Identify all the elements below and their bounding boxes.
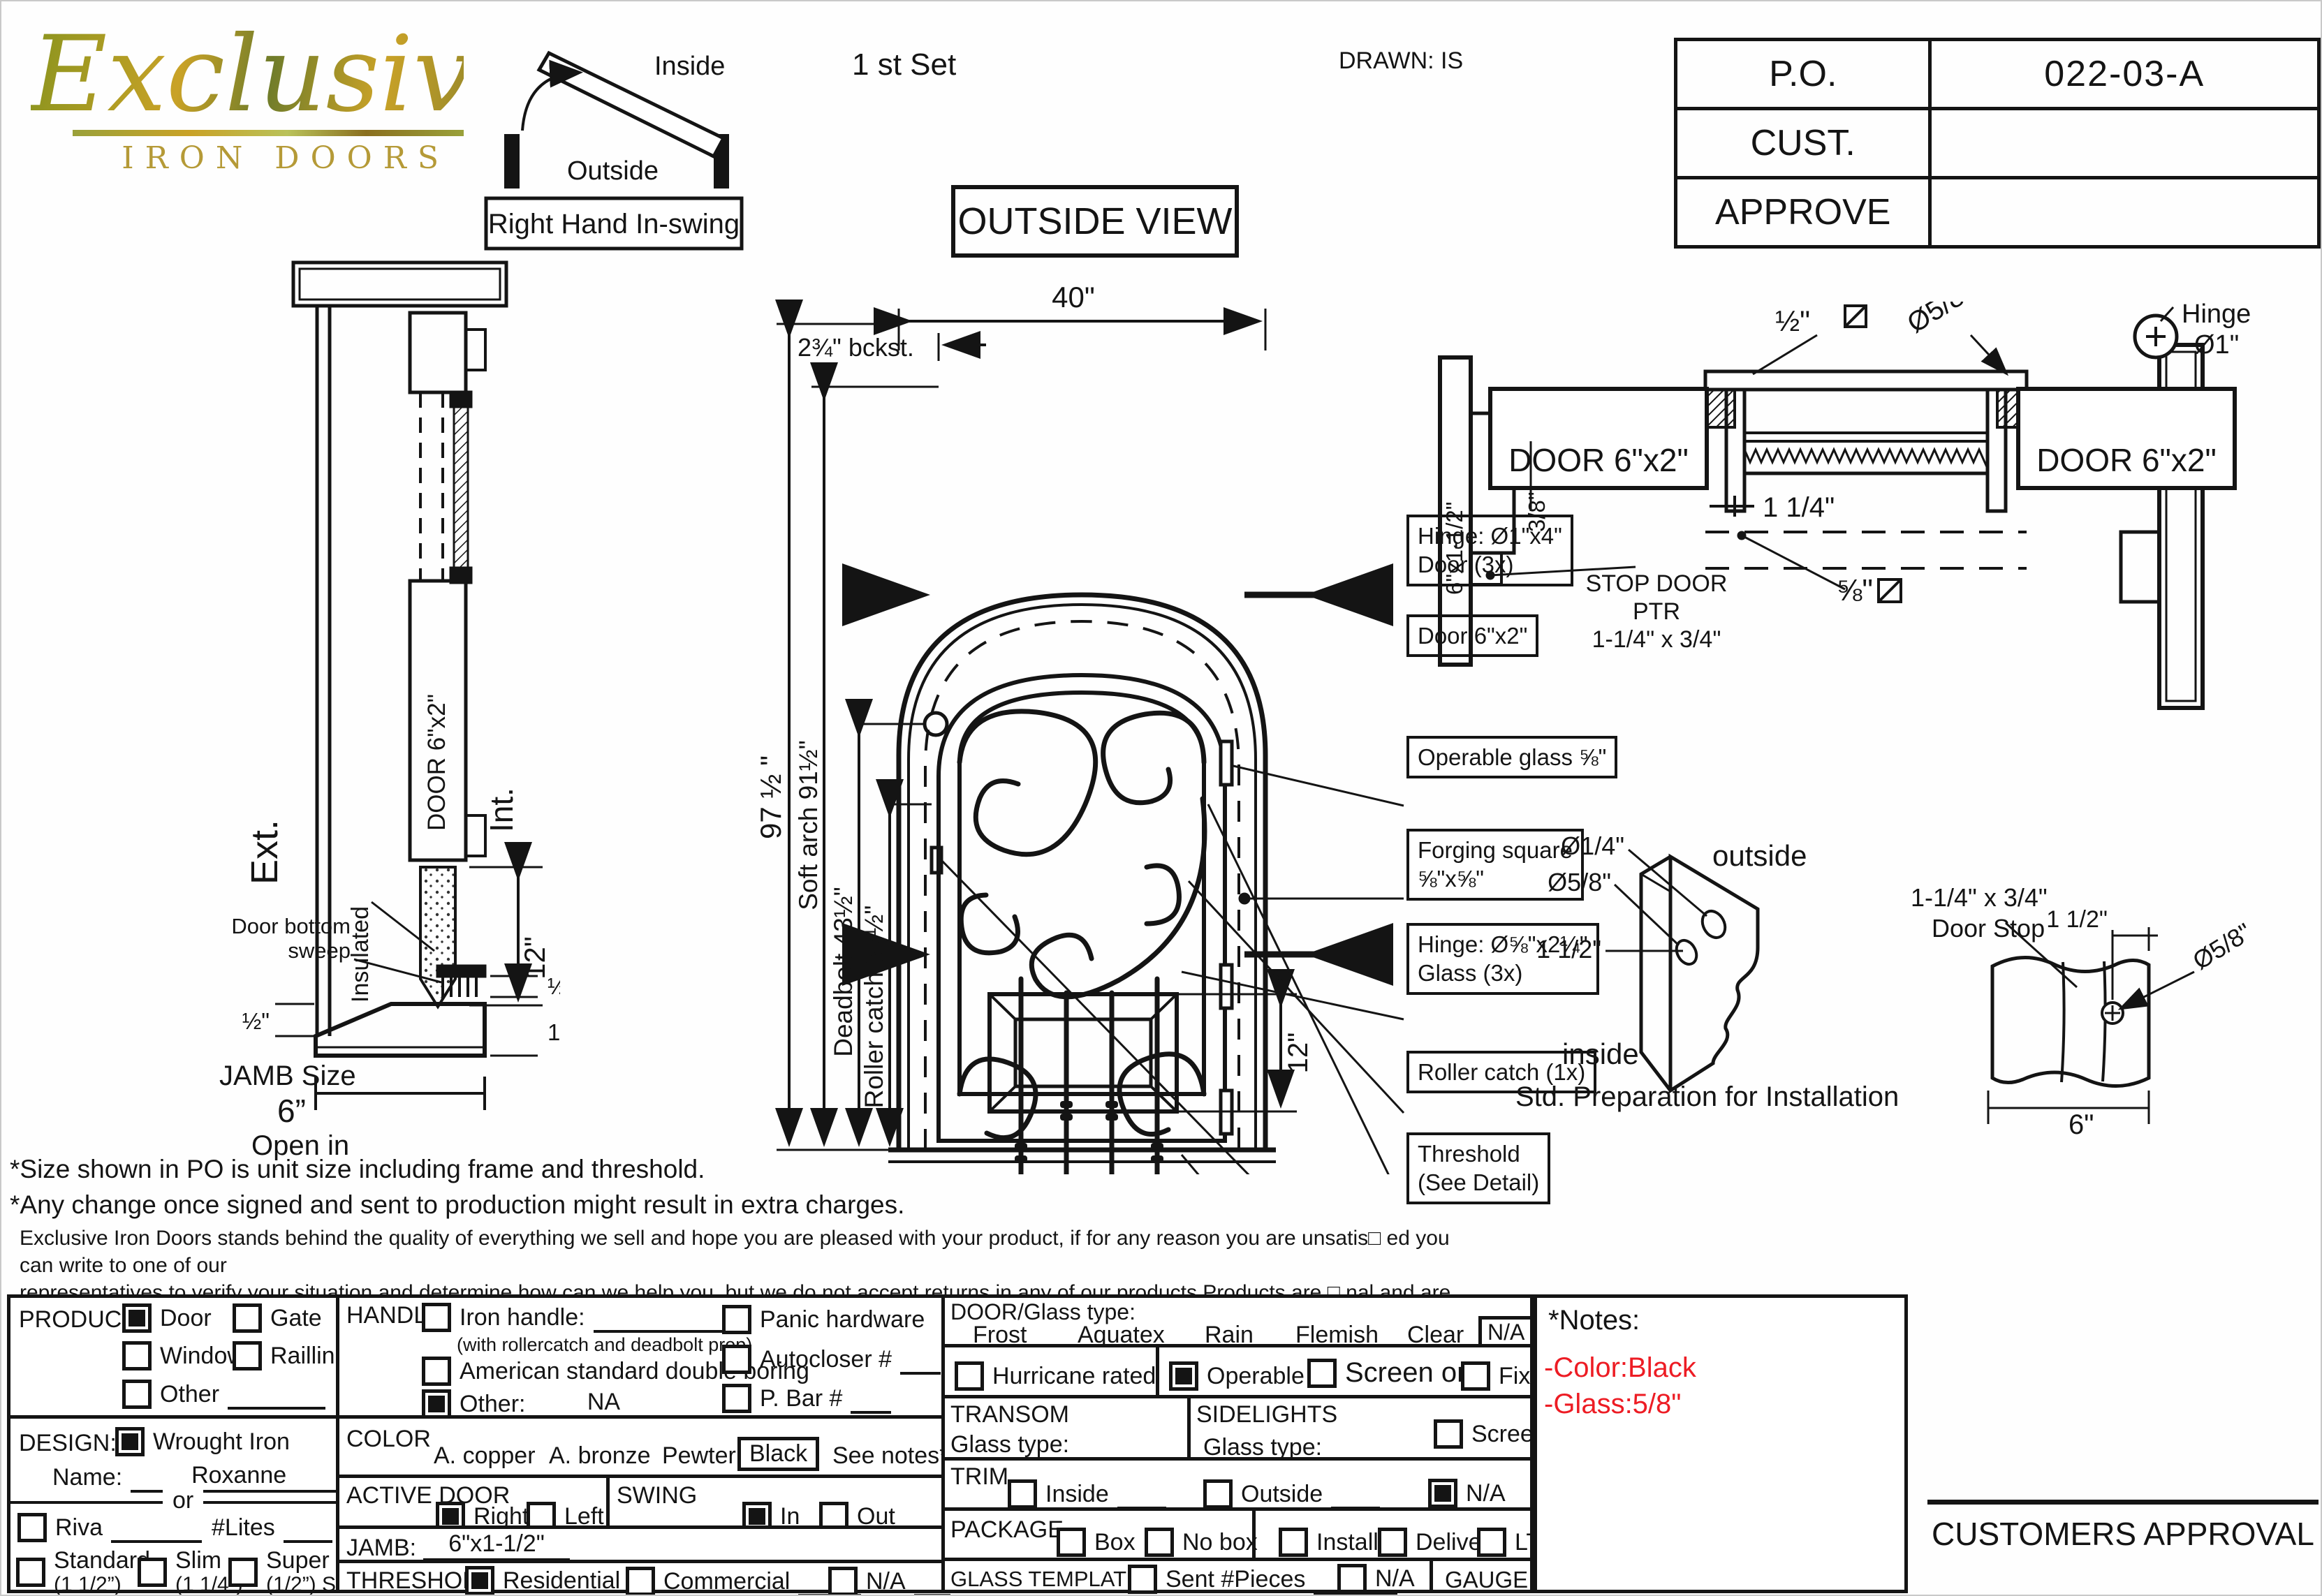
- handle-iron-checkbox[interactable]: [422, 1303, 451, 1332]
- po-label: P.O.: [1676, 40, 1930, 109]
- hurricane-section: Hurricane rated: [941, 1344, 1159, 1398]
- dim-deadbolt: Deadbolt 43½": [829, 887, 858, 1057]
- jamb-label: JAMB:: [346, 1535, 416, 1562]
- callout-threshold: Threshold (See Detail): [1406, 1132, 1550, 1204]
- head-hinge-dia: Ø1": [2194, 330, 2239, 360]
- head-dim-58: ⅝": [1837, 573, 1873, 607]
- head-dim-38: 3/8": [1524, 492, 1550, 532]
- stop-door-2: PTR: [1633, 598, 1680, 625]
- color-section: COLOR A. copper A. bronze Pewter Black S…: [336, 1415, 945, 1478]
- ext-label: Ext.: [244, 820, 286, 885]
- handle-pbar-field[interactable]: [851, 1383, 891, 1414]
- threshold-residential-checkbox[interactable]: [465, 1566, 494, 1595]
- cust-label: CUST.: [1676, 109, 1930, 178]
- prep-dim-112: 1 1/2": [1536, 935, 1601, 963]
- disclaimer-line1: *Size shown in PO is unit size including…: [10, 1155, 705, 1184]
- transom-glass-field[interactable]: [1078, 1429, 1168, 1460]
- handle-autocloser-field[interactable]: [900, 1344, 941, 1375]
- color-bronze[interactable]: A. bronze: [549, 1442, 651, 1470]
- dim-97: 97 ½ ": [756, 755, 787, 839]
- head-section-drawing: DOOR 6"x2" DOOR 6"x2" 6"x1-1/2" 3/8" ½" …: [1426, 302, 2322, 748]
- dim-one-half: 1½": [548, 1019, 560, 1045]
- threshold-na-checkbox[interactable]: [828, 1567, 858, 1596]
- head-hinge: Hinge: [2182, 302, 2251, 329]
- head-dia-58: Ø5/8": [1902, 302, 1978, 339]
- sidelights-screen-checkbox[interactable]: [1434, 1419, 1463, 1449]
- product-gate-checkbox[interactable]: [233, 1303, 262, 1333]
- stop-dia-58: Ø5/8": [2188, 917, 2257, 975]
- trim-inside-field[interactable]: [1117, 1479, 1166, 1509]
- handle-other-checkbox[interactable]: [422, 1389, 451, 1419]
- approval-label: CUSTOMERS APPROVAL: [1927, 1515, 2319, 1553]
- design-label: DESIGN:: [19, 1430, 117, 1457]
- package-section: PACKAGE Box No box Install Delivery LTL: [941, 1507, 1534, 1561]
- notes-color: -Color:Black: [1544, 1352, 1696, 1384]
- threshold-commercial-checkbox[interactable]: [626, 1567, 655, 1596]
- operable-checkbox[interactable]: [1169, 1361, 1198, 1391]
- dim-half-left: ½": [242, 1008, 270, 1034]
- approve-label: APPROVE: [1676, 178, 1930, 247]
- product-window-checkbox[interactable]: [122, 1341, 152, 1370]
- order-sheet: Exclusive IRON DOORS Inside Outside Righ…: [0, 0, 2322, 1596]
- product-railing-checkbox[interactable]: [233, 1341, 262, 1370]
- stop-dim-6: 6": [2069, 1109, 2094, 1139]
- hurricane-checkbox[interactable]: [955, 1361, 984, 1391]
- product-other-field[interactable]: [228, 1379, 325, 1410]
- color-copper[interactable]: A. copper: [434, 1442, 536, 1470]
- or-label: or: [163, 1487, 203, 1514]
- design-superslim-checkbox[interactable]: [228, 1558, 258, 1587]
- package-nobox-checkbox[interactable]: [1145, 1528, 1174, 1557]
- gauge-value: GAUGE: 14: [1445, 1567, 1534, 1596]
- handle-pbar-checkbox[interactable]: [722, 1384, 751, 1413]
- design-standard-checkbox[interactable]: [16, 1558, 45, 1587]
- design-slim-checkbox[interactable]: [138, 1558, 167, 1587]
- stop-door-1: STOP DOOR: [1586, 570, 1728, 597]
- dim-soft-arch: Soft arch 91½": [794, 740, 823, 910]
- dim-40: 40": [1052, 281, 1095, 313]
- order-form: PRODUCT: Door Gate Window Railling Other…: [7, 1294, 1908, 1593]
- dim-roller: Roller catch 37½": [860, 906, 888, 1109]
- handle-iron-field[interactable]: [594, 1302, 726, 1333]
- threshold-section: THRESHOLD Residential Commercial N/A: [336, 1560, 945, 1593]
- wall-stub-left: [504, 134, 520, 189]
- cust-value[interactable]: [1930, 109, 2319, 178]
- prep-outside: outside: [1712, 839, 1807, 872]
- stop-detail-drawing: 1-1/4" x 3/4" Door Stop 1 1/2" Ø5/8" 6": [1901, 860, 2320, 1139]
- head-dim-half: ½": [1775, 304, 1810, 337]
- design-section: DESIGN: Wrought Iron Name:Roxanne or Riv…: [7, 1415, 339, 1593]
- prep-inside: inside: [1562, 1037, 1639, 1070]
- operable-section: Operable Screen or Fixed: [1156, 1344, 1534, 1398]
- template-sent-checkbox[interactable]: [1128, 1565, 1157, 1594]
- dim-panel-12: 12": [1283, 1033, 1314, 1074]
- jamb-door-label: DOOR 6"x2": [423, 694, 450, 831]
- product-door-checkbox[interactable]: [122, 1303, 152, 1333]
- handle-autocloser-checkbox[interactable]: [722, 1345, 751, 1374]
- prep-dia-14: Ø1/4": [1561, 832, 1624, 860]
- head-dim-114: 1 1/4": [1763, 492, 1835, 523]
- logo: Exclusive IRON DOORS: [31, 22, 464, 176]
- po-table: P.O. 022-03-A CUST. APPROVE: [1674, 38, 2321, 249]
- door-elevation-drawing: 40" 2¾" bckst. 97 ½ " Soft arch 91½" Dea…: [756, 267, 1405, 1174]
- approval-signature-line[interactable]: [1927, 1500, 2319, 1505]
- notes-title: *Notes:: [1548, 1305, 1640, 1336]
- package-box-checkbox[interactable]: [1057, 1528, 1086, 1557]
- outside-view-title: OUTSIDE VIEW: [951, 185, 1239, 258]
- int-label: Int.: [483, 788, 520, 832]
- disclaimer-line2: *Any change once signed and sent to prod…: [10, 1190, 904, 1220]
- design-riva-checkbox[interactable]: [17, 1513, 47, 1542]
- handle-panic-checkbox[interactable]: [722, 1305, 751, 1334]
- design-lites-field[interactable]: [284, 1512, 332, 1543]
- swing-diagram: Inside Outside Right Hand In-swing: [483, 36, 756, 260]
- trim-label: TRIM: [950, 1463, 1008, 1491]
- insulated-label: Insulated: [347, 906, 374, 1003]
- drawn-by: DRAWN: IS: [1339, 47, 1463, 75]
- dim-half-right: ½": [548, 973, 560, 999]
- package-install-checkbox[interactable]: [1279, 1528, 1308, 1557]
- head-jamb-plate: 6"x1-1/2": [1441, 502, 1467, 596]
- stop-size: 1-1/4" x 3/4": [1911, 883, 2048, 912]
- logo-subtitle: IRON DOORS: [31, 140, 450, 176]
- outside-label: Outside: [567, 156, 659, 186]
- sidelights-section: SIDELIGHTS Glass type: Screen: [1187, 1395, 1534, 1461]
- glass-template-label: GLASS TEMPLATE: [950, 1567, 1141, 1592]
- swing-section: SWING In Out: [606, 1475, 945, 1529]
- logo-script: Exclusive: [31, 22, 464, 127]
- package-delivery-checkbox[interactable]: [1378, 1528, 1407, 1557]
- glass-template-section: GLASS TEMPLATE Sent #Pieces N/A GAUGE: 1…: [941, 1558, 1534, 1593]
- backset-dim: 2¾" bckst.: [798, 333, 914, 362]
- color-see-notes: See notes*: [832, 1442, 948, 1470]
- set-label: 1 st Set: [852, 47, 956, 82]
- trim-inside-checkbox[interactable]: [1008, 1479, 1037, 1509]
- design-riva-field[interactable]: [111, 1512, 202, 1543]
- color-black-selected[interactable]: Black: [737, 1437, 819, 1471]
- template-na-checkbox[interactable]: [1337, 1564, 1367, 1593]
- inside-label: Inside: [654, 52, 725, 81]
- jamb-section-form: JAMB: 6"x1-1/2": [336, 1525, 945, 1563]
- handle-iron-sub: (with rollercatch and deadbolt prep): [457, 1334, 752, 1356]
- swing-label: SWING: [617, 1482, 697, 1509]
- jamb-section-drawing: Ext. DOOR 6"x2" Int. 12" Insulated Door …: [211, 253, 560, 1160]
- po-value[interactable]: 022-03-A: [1930, 40, 2319, 109]
- prep-caption: Std. Preparation for Installation: [1515, 1081, 1899, 1112]
- screen-or-checkbox[interactable]: [1307, 1359, 1337, 1388]
- trim-outside-checkbox[interactable]: [1203, 1479, 1233, 1509]
- design-wrought-checkbox[interactable]: [115, 1427, 145, 1456]
- notes-glass: -Glass:5/8": [1544, 1389, 1681, 1420]
- package-divider: [1252, 1511, 1256, 1561]
- stop-dim-112: 1 1/2": [2046, 906, 2108, 933]
- sweep-label-2: sweep: [288, 938, 351, 963]
- fixed-checkbox[interactable]: [1461, 1361, 1490, 1391]
- handle-section: HANDLE Iron handle: (with rollercatch an…: [336, 1294, 945, 1419]
- jamb-field[interactable]: 6"x1-1/2": [423, 1530, 570, 1561]
- product-other-checkbox[interactable]: [122, 1380, 152, 1409]
- product-section: PRODUCT: Door Gate Window Railling Other: [7, 1294, 339, 1419]
- glass-type-section: DOOR/Glass type: Frost Aquatex Rain Flem…: [941, 1294, 1534, 1347]
- transom-section: TRANSOM Glass type:: [941, 1395, 1191, 1461]
- prep-dia-58: Ø5/8": [1548, 868, 1611, 896]
- swing-label: Right Hand In-swing: [488, 209, 740, 239]
- approve-value[interactable]: [1930, 178, 2319, 247]
- active-door-section: ACTIVE DOOR Right Left: [336, 1475, 610, 1529]
- sidelights-label: SIDELIGHTS: [1196, 1401, 1337, 1428]
- stop-door-3: 1-1/4" x 3/4": [1592, 626, 1721, 653]
- package-ltl-checkbox[interactable]: [1477, 1528, 1506, 1557]
- trim-section: TRIM Inside Outside N/A: [941, 1457, 1534, 1511]
- jamb-size-label: JAMB Size: [219, 1061, 356, 1091]
- prep-detail-drawing: Ø1/4" Ø5/8" 1 1/2" outside inside Std. P…: [1503, 818, 1908, 1139]
- jamb-size-value: 6”: [277, 1093, 306, 1129]
- dim-12: 12": [518, 936, 551, 980]
- trim-outside-field[interactable]: [1331, 1479, 1380, 1509]
- color-pewter[interactable]: Pewter: [662, 1442, 736, 1470]
- handle-american-checkbox[interactable]: [422, 1357, 451, 1386]
- transom-label: TRANSOM: [950, 1401, 1069, 1428]
- head-door-left: DOOR 6"x2": [1508, 442, 1689, 478]
- package-label: PACKAGE: [950, 1516, 1064, 1544]
- trim-na-checkbox[interactable]: [1428, 1479, 1457, 1508]
- notes-panel: *Notes: -Color:Black -Glass:5/8": [1534, 1294, 1908, 1593]
- head-door-right: DOOR 6"x2": [2036, 442, 2217, 478]
- gauge-divider: [1430, 1558, 1433, 1593]
- color-label: COLOR: [346, 1426, 431, 1453]
- sweep-label-1: Door bottom: [231, 914, 351, 938]
- stop-name: Door Stop: [1932, 914, 2045, 943]
